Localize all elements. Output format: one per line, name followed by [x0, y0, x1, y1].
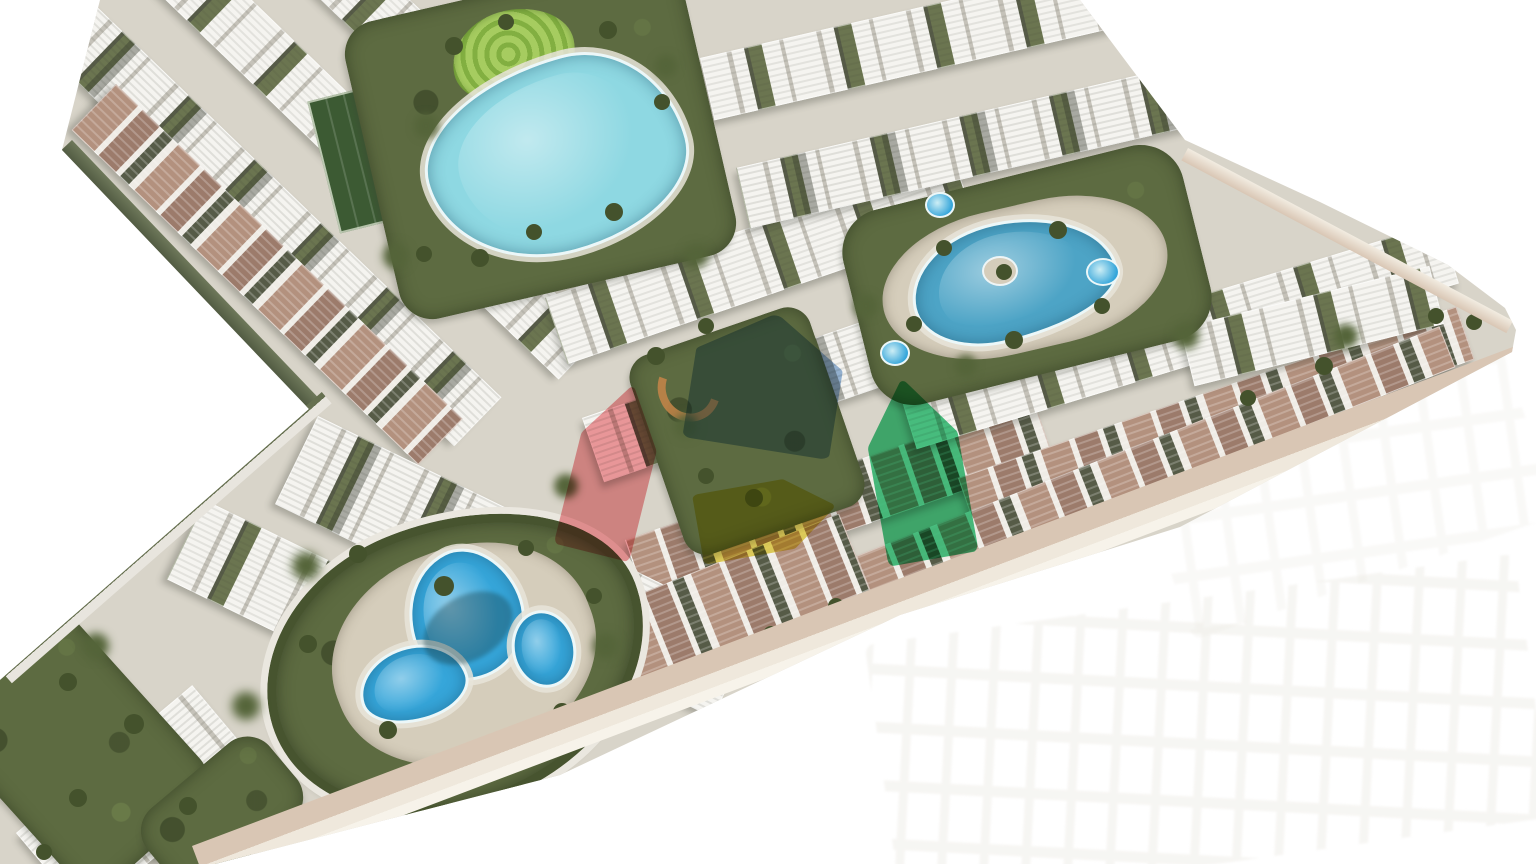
plunge-pool: [1086, 258, 1120, 286]
plunge-pool: [880, 340, 910, 366]
residential-complex: [0, 0, 1536, 864]
ghost-artifact: [865, 554, 1536, 864]
pool-island: [982, 256, 1018, 286]
aerial-render: [0, 0, 1536, 864]
bushes: [0, 0, 12, 12]
plunge-pool: [925, 192, 955, 218]
palm-trees: [0, 0, 12, 12]
